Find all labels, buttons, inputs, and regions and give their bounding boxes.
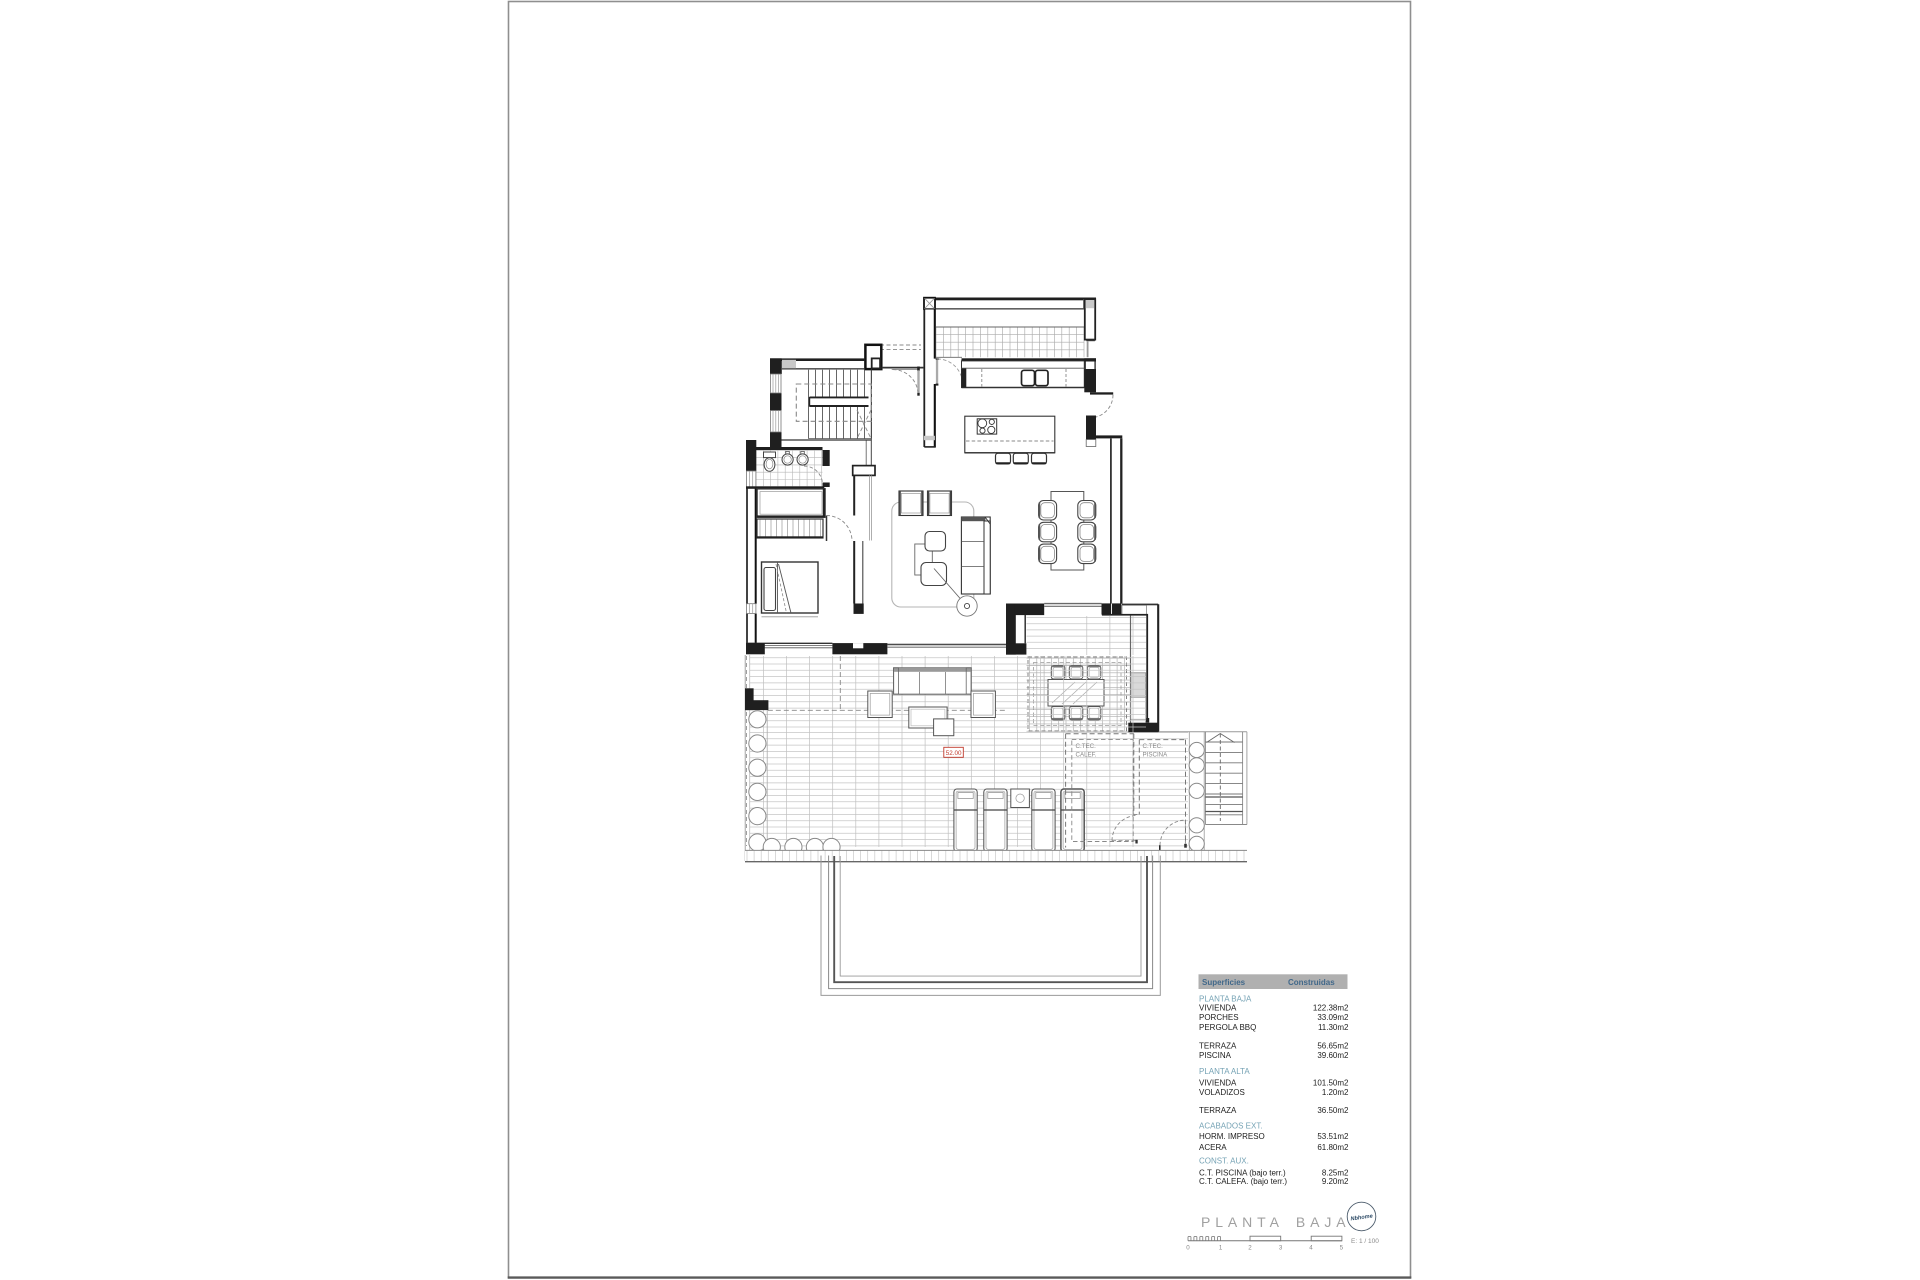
- svg-text:11.30m2: 11.30m2: [1318, 1023, 1349, 1032]
- svg-text:C.T. CALEFA. (bajo terr.): C.T. CALEFA. (bajo terr.): [1199, 1177, 1287, 1186]
- svg-text:8.25m2: 8.25m2: [1322, 1168, 1349, 1177]
- svg-text:101.50m2: 101.50m2: [1313, 1079, 1349, 1088]
- svg-text:PLANTA ALTA: PLANTA ALTA: [1199, 1067, 1250, 1076]
- svg-text:Superficies: Superficies: [1202, 978, 1246, 987]
- svg-text:2: 2: [1248, 1245, 1252, 1252]
- svg-text:33.09m2: 33.09m2: [1317, 1013, 1349, 1022]
- svg-text:39.60m2: 39.60m2: [1317, 1051, 1349, 1060]
- svg-text:VIVIENDA: VIVIENDA: [1199, 1003, 1237, 1012]
- svg-text:122.38m2: 122.38m2: [1313, 1003, 1349, 1012]
- svg-text:VIVIENDA: VIVIENDA: [1199, 1079, 1237, 1088]
- svg-text:Construidas: Construidas: [1288, 978, 1335, 987]
- svg-text:E: 1 / 100: E: 1 / 100: [1351, 1238, 1379, 1245]
- svg-text:C.T. PISCINA (bajo terr.): C.T. PISCINA (bajo terr.): [1199, 1168, 1286, 1177]
- svg-text:CONST. AUX.: CONST. AUX.: [1199, 1157, 1249, 1166]
- svg-text:61.80m2: 61.80m2: [1317, 1143, 1349, 1152]
- svg-text:5: 5: [1340, 1245, 1344, 1252]
- svg-text:1.20m2: 1.20m2: [1322, 1088, 1349, 1097]
- svg-text:56.65m2: 56.65m2: [1317, 1041, 1349, 1050]
- svg-text:4: 4: [1309, 1245, 1313, 1252]
- svg-text:36.50m2: 36.50m2: [1317, 1106, 1349, 1115]
- svg-text:TERRAZA: TERRAZA: [1199, 1106, 1237, 1115]
- svg-text:TERRAZA: TERRAZA: [1199, 1041, 1237, 1050]
- svg-text:ACABADOS EXT.: ACABADOS EXT.: [1199, 1121, 1263, 1130]
- svg-text:PISCINA: PISCINA: [1199, 1051, 1232, 1060]
- svg-text:1: 1: [1219, 1245, 1223, 1252]
- svg-text:C.TEC.CALEF.: C.TEC.CALEF.: [1076, 743, 1097, 759]
- svg-text:52.00: 52.00: [946, 750, 962, 757]
- svg-text:HORM. IMPRESO: HORM. IMPRESO: [1199, 1132, 1265, 1141]
- svg-text:ACERA: ACERA: [1199, 1143, 1227, 1152]
- svg-text:3: 3: [1279, 1245, 1283, 1252]
- svg-text:PORCHES: PORCHES: [1199, 1013, 1239, 1022]
- svg-text:PLANTA BAJA: PLANTA BAJA: [1201, 1214, 1350, 1230]
- svg-text:VOLADIZOS: VOLADIZOS: [1199, 1088, 1245, 1097]
- svg-text:PERGOLA BBQ: PERGOLA BBQ: [1199, 1023, 1256, 1032]
- svg-text:PLANTA BAJA: PLANTA BAJA: [1199, 995, 1252, 1004]
- svg-text:9.20m2: 9.20m2: [1322, 1177, 1349, 1186]
- svg-text:0: 0: [1186, 1245, 1190, 1252]
- svg-text:53.51m2: 53.51m2: [1317, 1132, 1349, 1141]
